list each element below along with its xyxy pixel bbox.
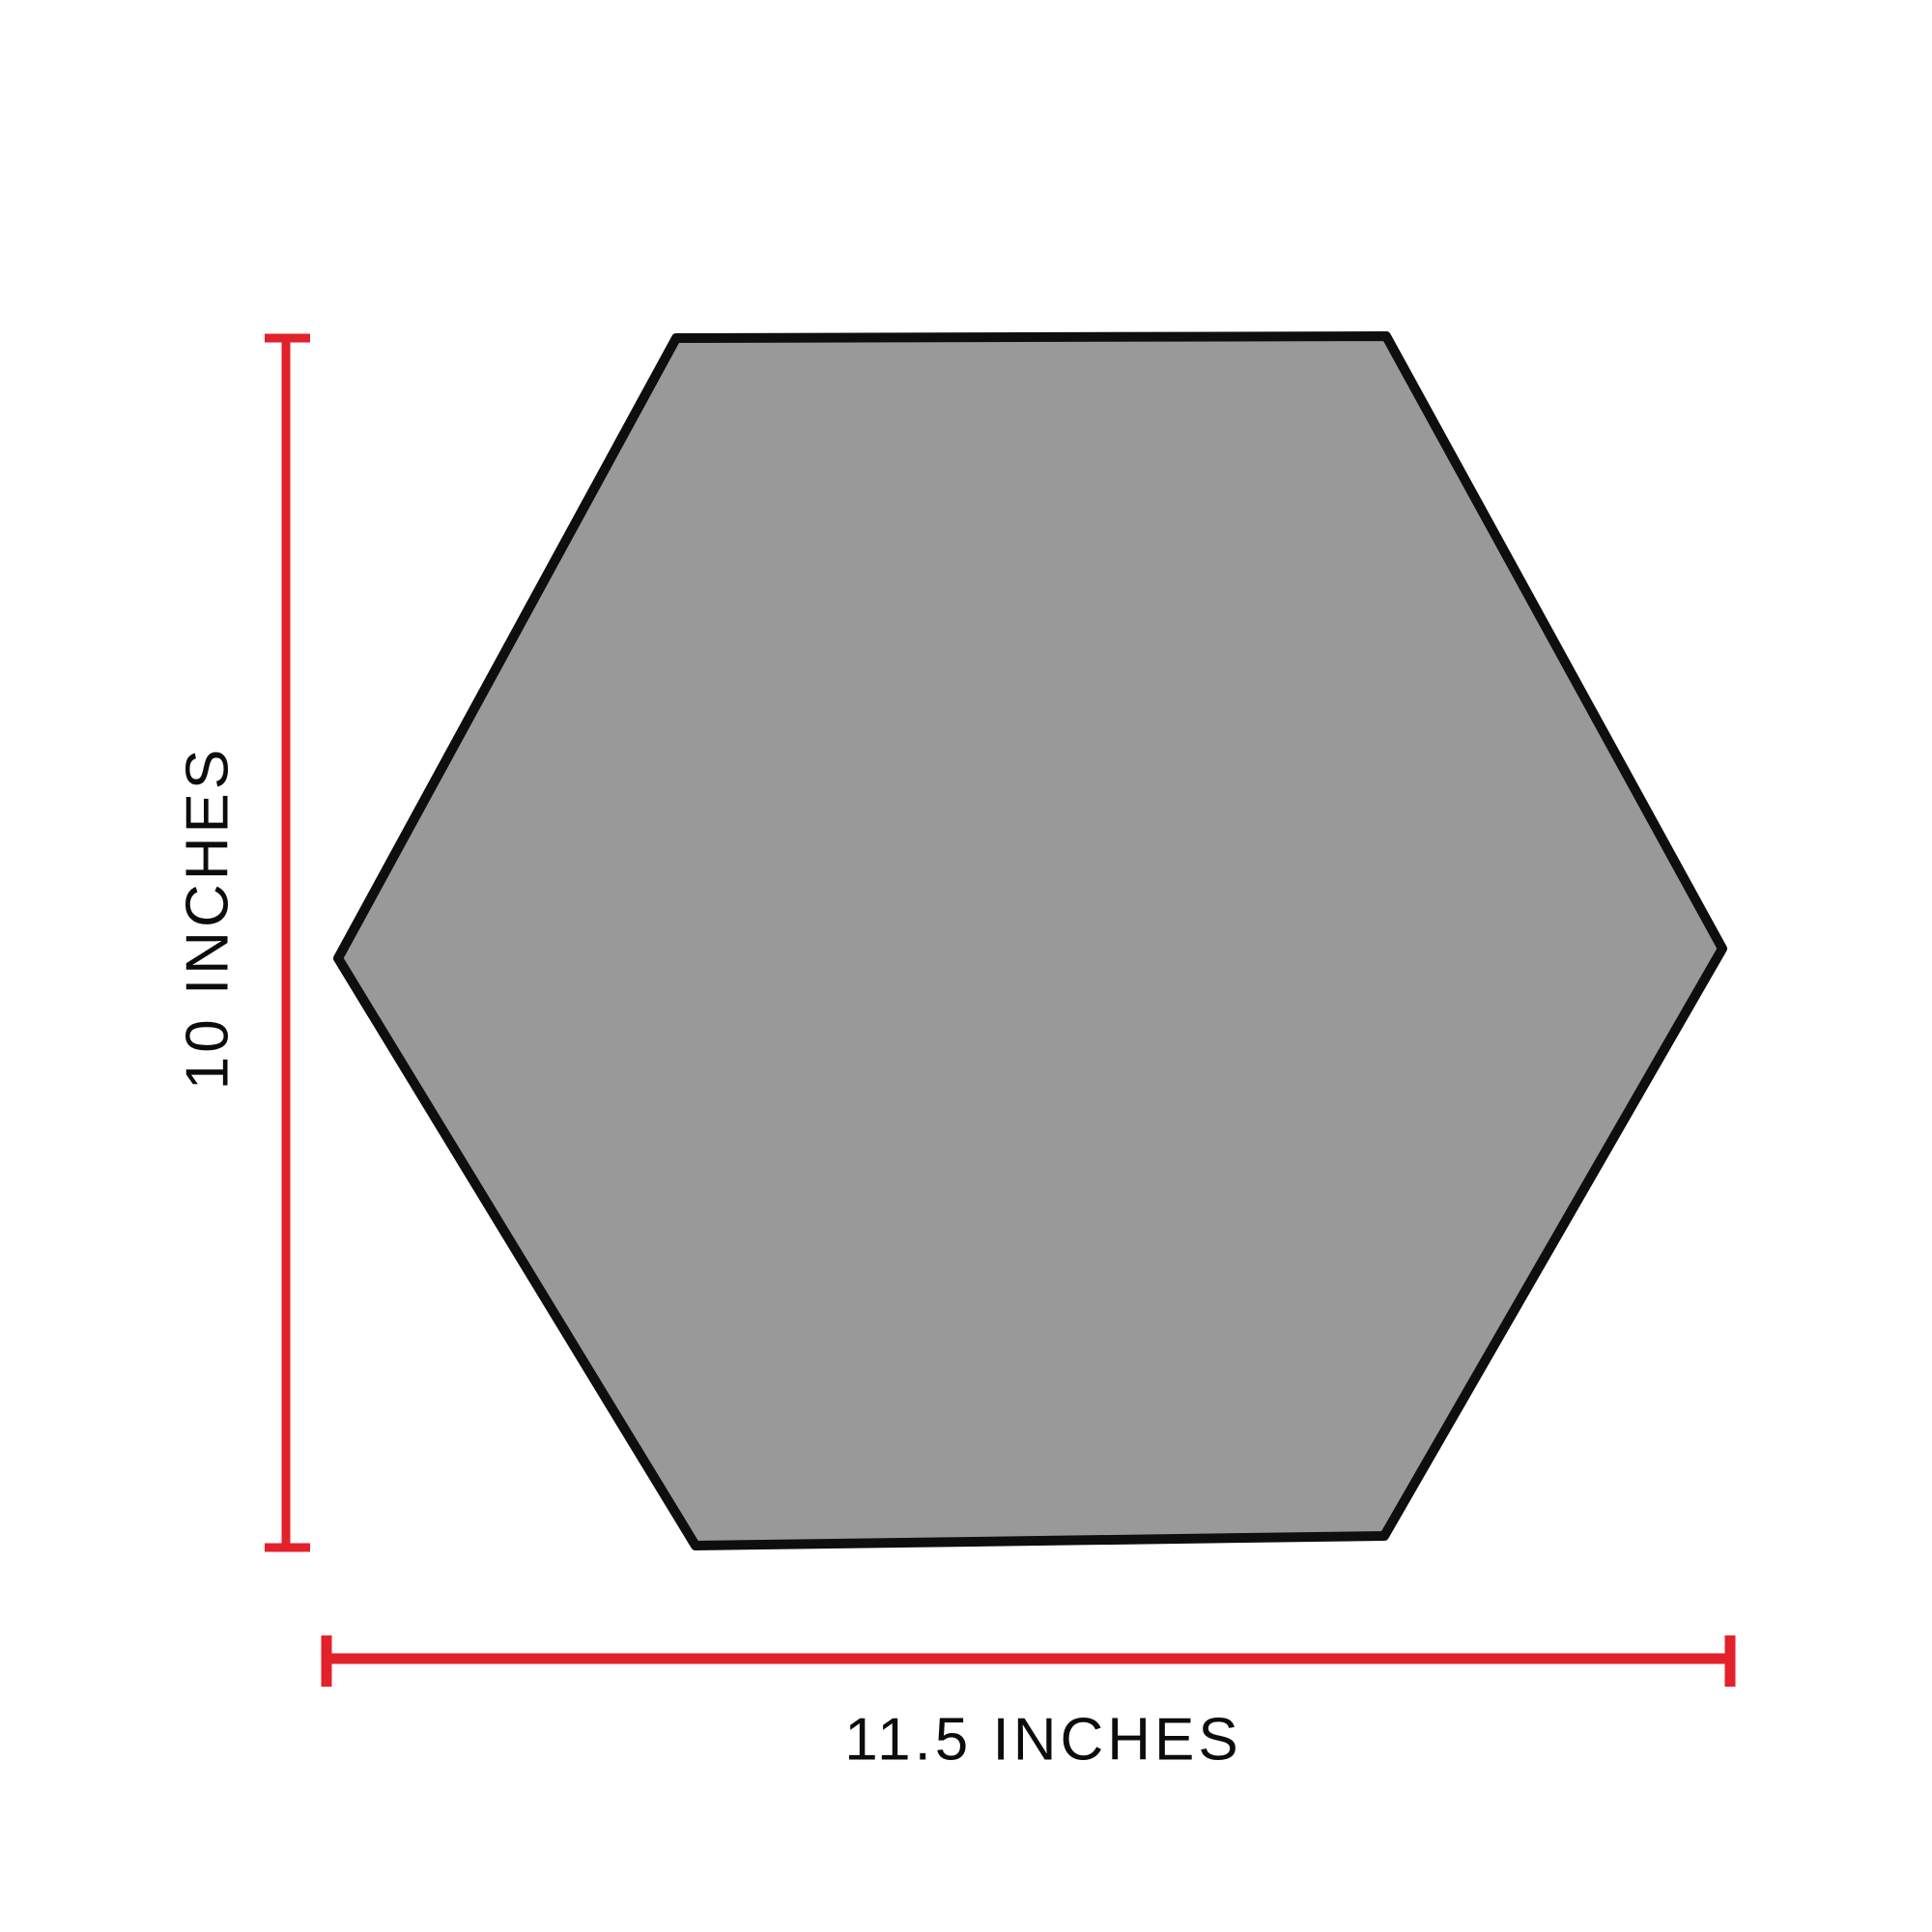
diagram-canvas: 10 INCHES 11.5 INCHES [0, 0, 1932, 1932]
hexagon-dimension-diagram [0, 0, 1932, 1932]
horizontal-dimension-line [327, 1635, 1730, 1687]
vertical-dimension-line [265, 338, 310, 1548]
height-dimension-label: 10 INCHES [174, 746, 242, 1090]
hexagon-shape [338, 336, 1722, 1546]
width-dimension-label: 11.5 INCHES [844, 1706, 1242, 1775]
